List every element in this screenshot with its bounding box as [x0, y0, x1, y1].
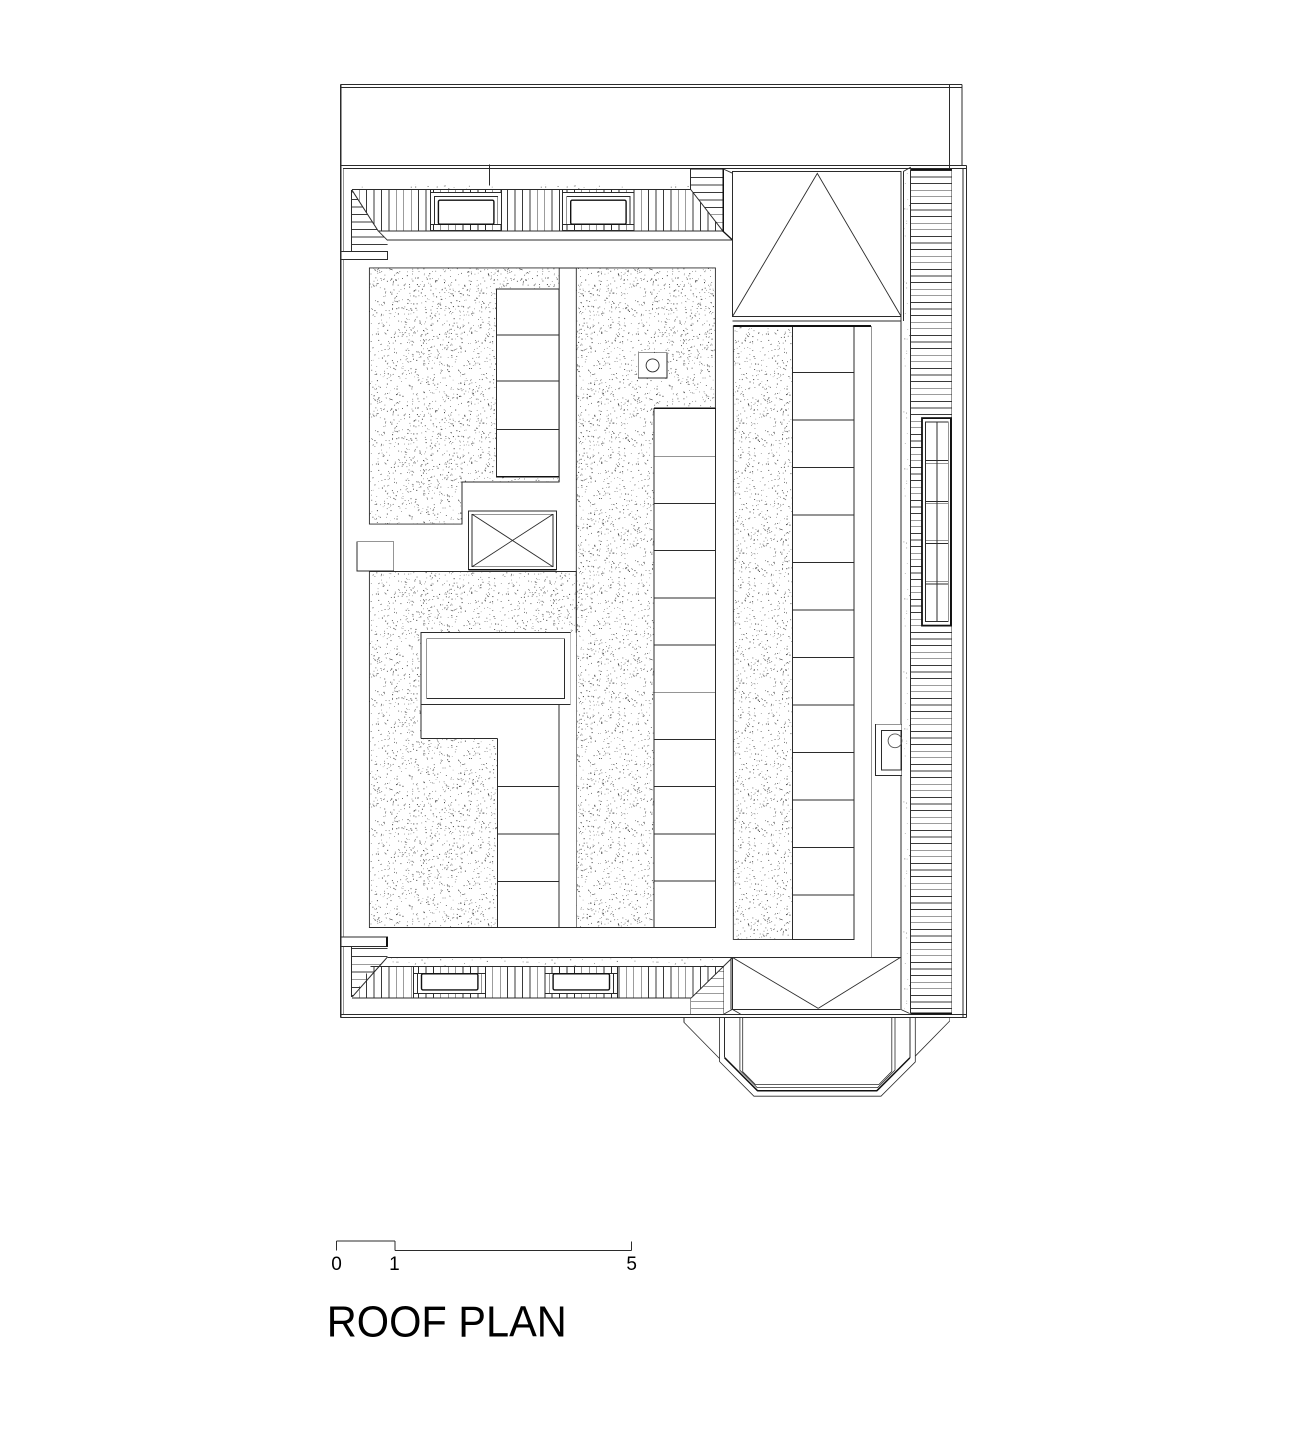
svg-text:1: 1	[389, 1254, 400, 1275]
svg-text:0: 0	[331, 1254, 342, 1275]
svg-text:ROOF PLAN: ROOF PLAN	[327, 1298, 567, 1347]
svg-text:5: 5	[626, 1254, 637, 1275]
